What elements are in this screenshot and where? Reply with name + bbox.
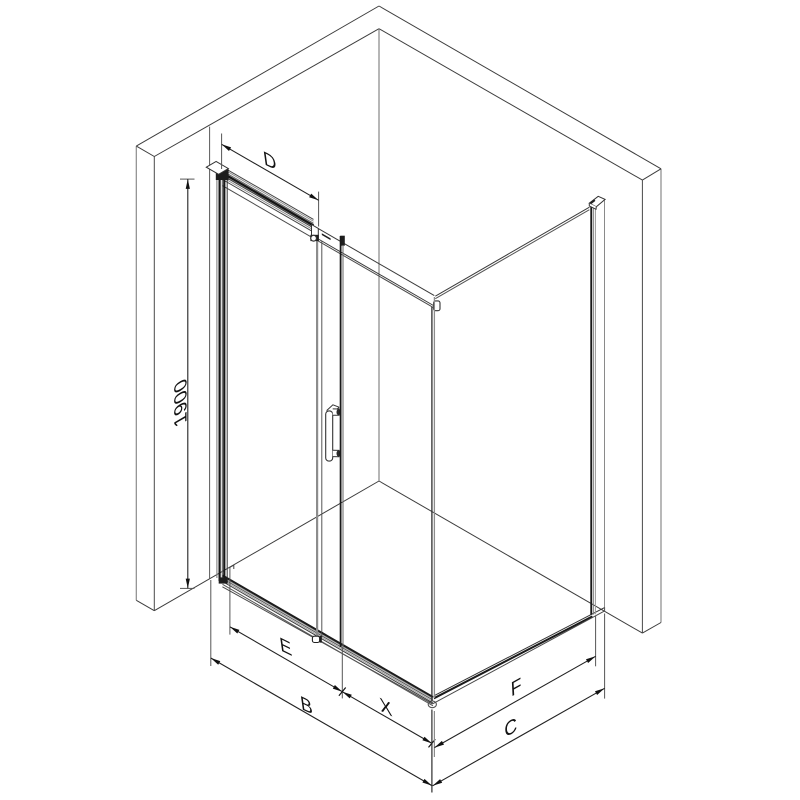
svg-text:D: D <box>262 147 278 175</box>
svg-text:F: F <box>510 674 522 702</box>
svg-text:E: E <box>278 634 293 662</box>
svg-text:B: B <box>299 692 314 720</box>
svg-text:X: X <box>378 694 393 722</box>
